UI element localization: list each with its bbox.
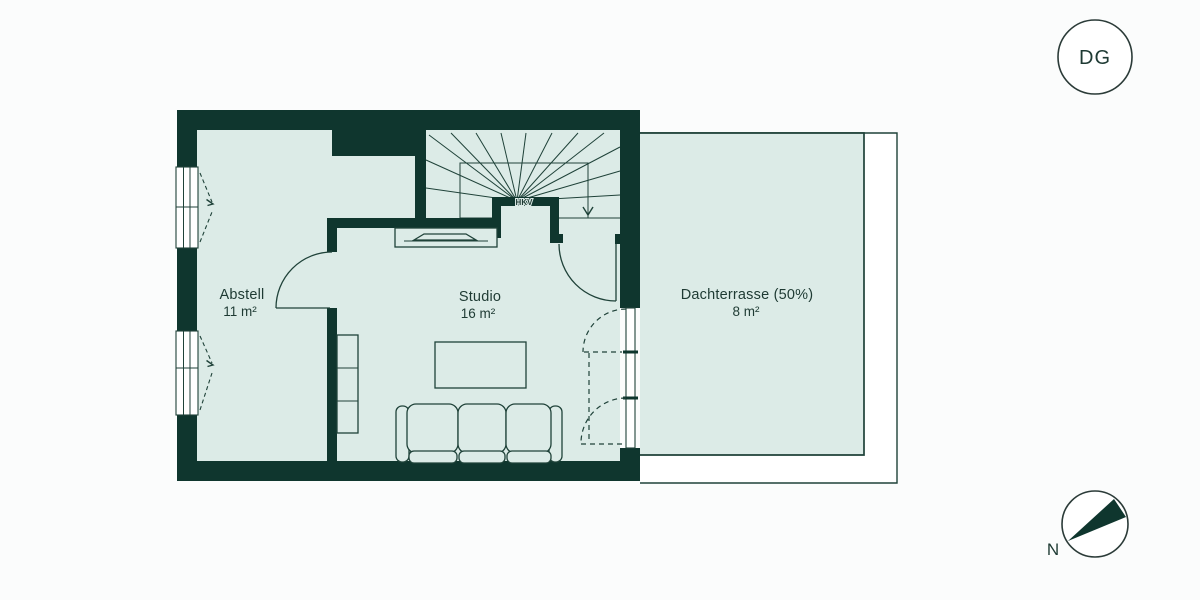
interior-wall-upper — [327, 218, 337, 252]
door-jamb-block — [615, 234, 626, 244]
room-name-studio: Studio — [459, 289, 501, 305]
wall-block-top — [332, 128, 415, 156]
floor-badge: DG — [1058, 20, 1132, 94]
coffee-table — [435, 342, 526, 388]
floor-plan-canvas: Abstell 11 m² Studio 16 m² Dachterrasse … — [0, 0, 1200, 600]
compass: N — [1047, 491, 1128, 559]
shelf-unit — [337, 335, 358, 433]
hkv-label: HKV — [516, 198, 534, 207]
interior-wall-lower — [327, 308, 337, 462]
room-name-dachterrasse: Dachterrasse (50%) — [681, 287, 814, 303]
wall-left — [177, 110, 197, 481]
lowboard — [395, 228, 497, 247]
room-name-abstell: Abstell — [220, 287, 265, 303]
wall-bottom — [177, 461, 640, 481]
room-area-studio: 16 m² — [461, 306, 496, 321]
room-area-dachterrasse: 8 m² — [733, 304, 761, 319]
room-area-abstell: 11 m² — [223, 304, 257, 319]
compass-north-label: N — [1047, 540, 1059, 559]
wall-right-upper — [620, 110, 640, 308]
stair-enclosure-wall — [415, 128, 426, 222]
sofa — [396, 404, 562, 463]
wall-band-under-stair — [327, 218, 492, 228]
roof-terrace — [640, 133, 897, 483]
wall-top — [177, 110, 640, 130]
floor-badge-label: DG — [1079, 47, 1111, 69]
wall-right-lower — [620, 448, 640, 481]
